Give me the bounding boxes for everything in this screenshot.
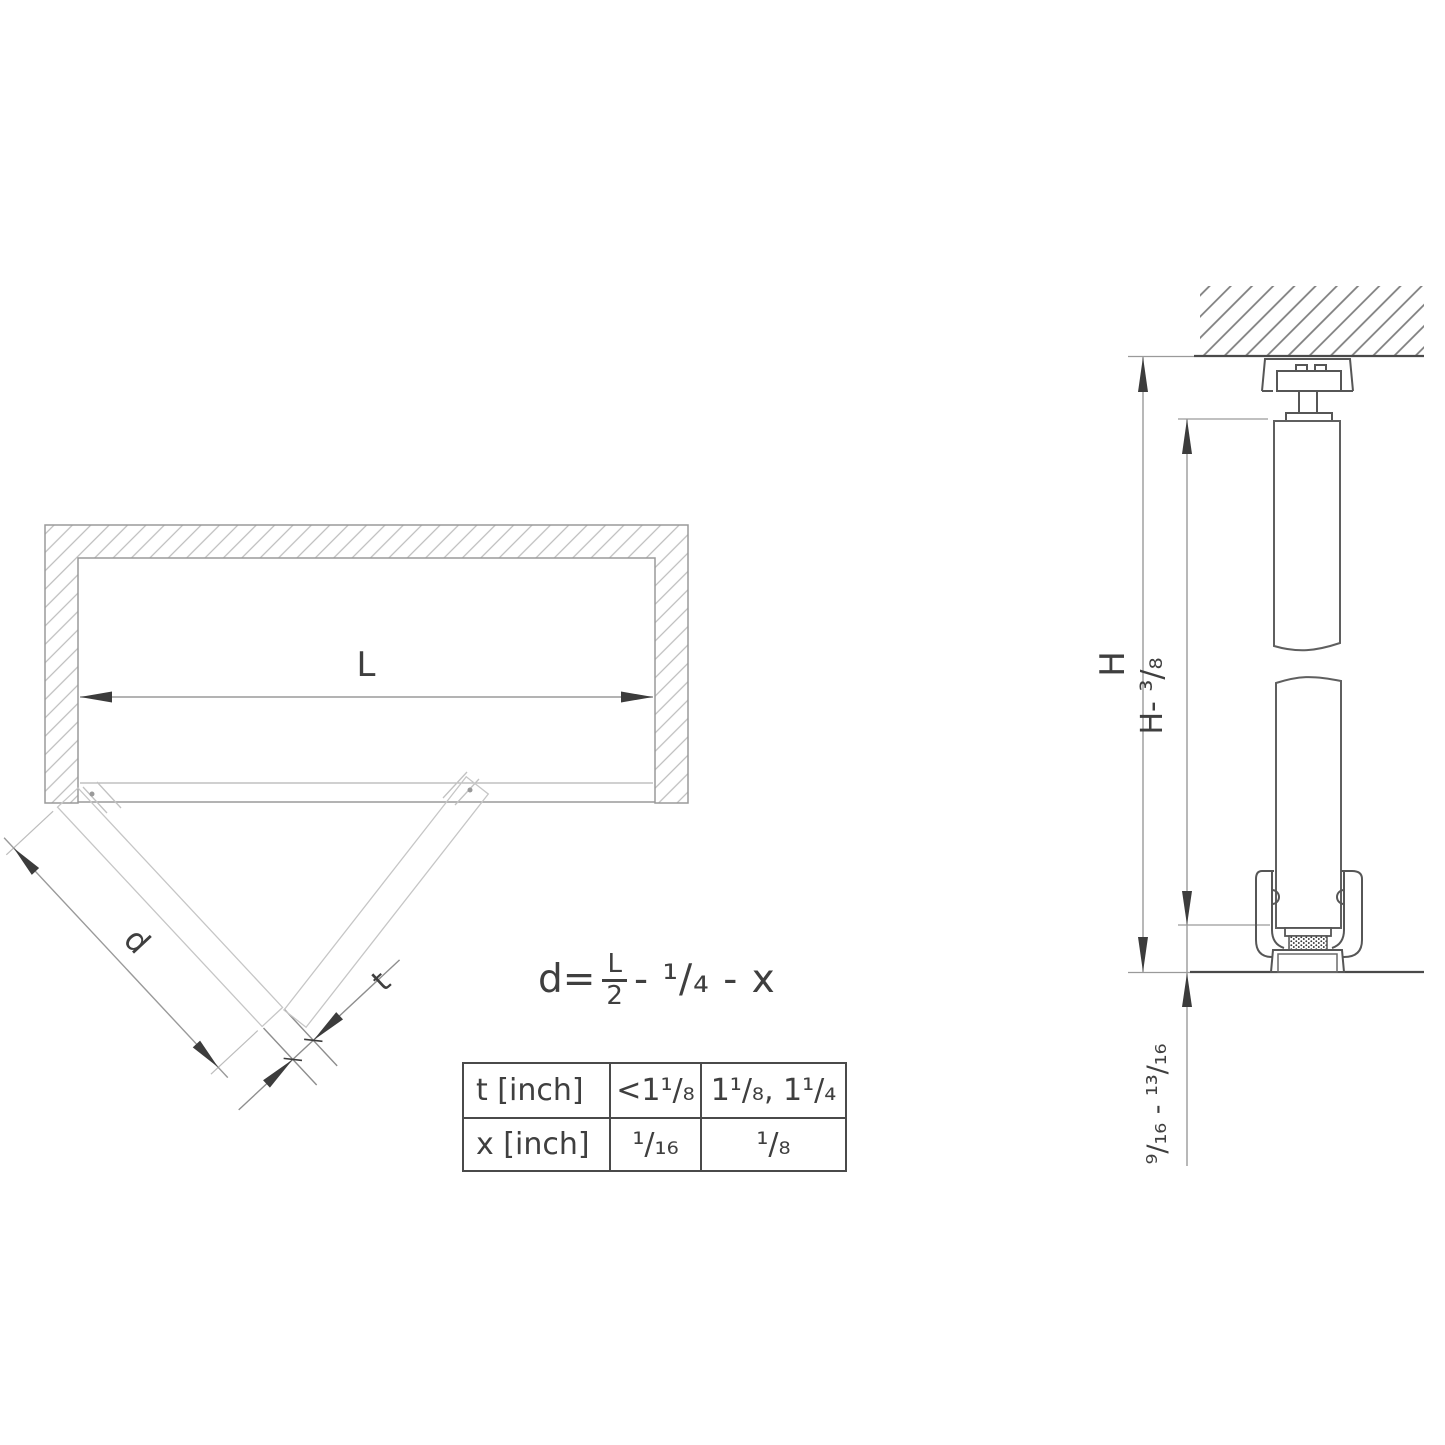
door-width-formula: d= L 2 - ¹/₄ - x xyxy=(538,948,776,1010)
formula-tail: - ¹/₄ - x xyxy=(634,957,776,1002)
arrow-H-top xyxy=(1138,357,1148,392)
technical-drawing-page: L d t xyxy=(0,0,1445,1445)
d-dimension-line xyxy=(4,838,228,1078)
arrow-H-bottom xyxy=(1138,937,1148,972)
label-door-width: d xyxy=(116,920,158,961)
thickness-parameter-table: t [inch] <1¹/₈ 1¹/₈, 1¹/₄ x [inch] ¹/₁₆ … xyxy=(462,1062,847,1172)
arrow-t-lower xyxy=(263,1056,296,1088)
label-floor-clearance: ⁹/₁₆ - ¹³/₁₆ xyxy=(1142,1044,1173,1165)
table-cell-x-small: ¹/₁₆ xyxy=(609,1117,700,1170)
formula-lhs: d= xyxy=(538,957,595,1002)
table-cell-t-large: 1¹/₈, 1¹/₄ xyxy=(700,1064,845,1117)
formula-numerator: L xyxy=(602,950,627,982)
right-slider-point xyxy=(468,788,473,793)
adjuster-knurled-nut xyxy=(1289,936,1327,951)
table-cell-t-small: <1¹/₈ xyxy=(609,1064,700,1117)
arrow-L-left xyxy=(80,692,112,703)
table-cell-x-large: ¹/₈ xyxy=(700,1117,845,1170)
label-door-thickness: t xyxy=(365,965,398,999)
label-door-height: H- ³/₈ xyxy=(1135,657,1170,734)
leaf1-outline xyxy=(58,788,283,1027)
arrow-door-height-bottom xyxy=(1182,891,1192,925)
label-opening-width: L xyxy=(357,645,376,685)
label-total-height: H xyxy=(1093,651,1133,677)
arrow-floor-clearance xyxy=(1182,973,1192,1007)
dimension-L: L xyxy=(80,645,653,703)
table-cell-x-header: x [inch] xyxy=(464,1117,609,1170)
adjuster-plate xyxy=(1285,928,1331,936)
door-upper-section xyxy=(1274,421,1340,650)
arrow-L-right xyxy=(621,692,653,703)
t-edge-extension-1 xyxy=(284,1009,337,1066)
top-pivot-pin xyxy=(1299,391,1317,415)
pivot-hardware-marks xyxy=(83,772,479,813)
arrow-door-height-top xyxy=(1182,419,1192,454)
plan-view: L d t xyxy=(0,525,688,1135)
ceiling-hatched xyxy=(1200,286,1424,356)
formula-denominator: 2 xyxy=(606,982,623,1010)
top-pivot-fixture xyxy=(1262,359,1353,422)
top-fixture-body xyxy=(1277,371,1341,391)
door-lower-section xyxy=(1276,677,1341,928)
left-pivot-point xyxy=(90,792,95,797)
formula-fraction: L 2 xyxy=(602,950,627,1010)
table-cell-t-header: t [inch] xyxy=(464,1064,609,1117)
technical-drawing: L d t xyxy=(0,0,1445,1445)
section-view: H H- ³/₈ ⁹/₁₆ - ¹³/₁₆ xyxy=(1093,286,1424,1166)
